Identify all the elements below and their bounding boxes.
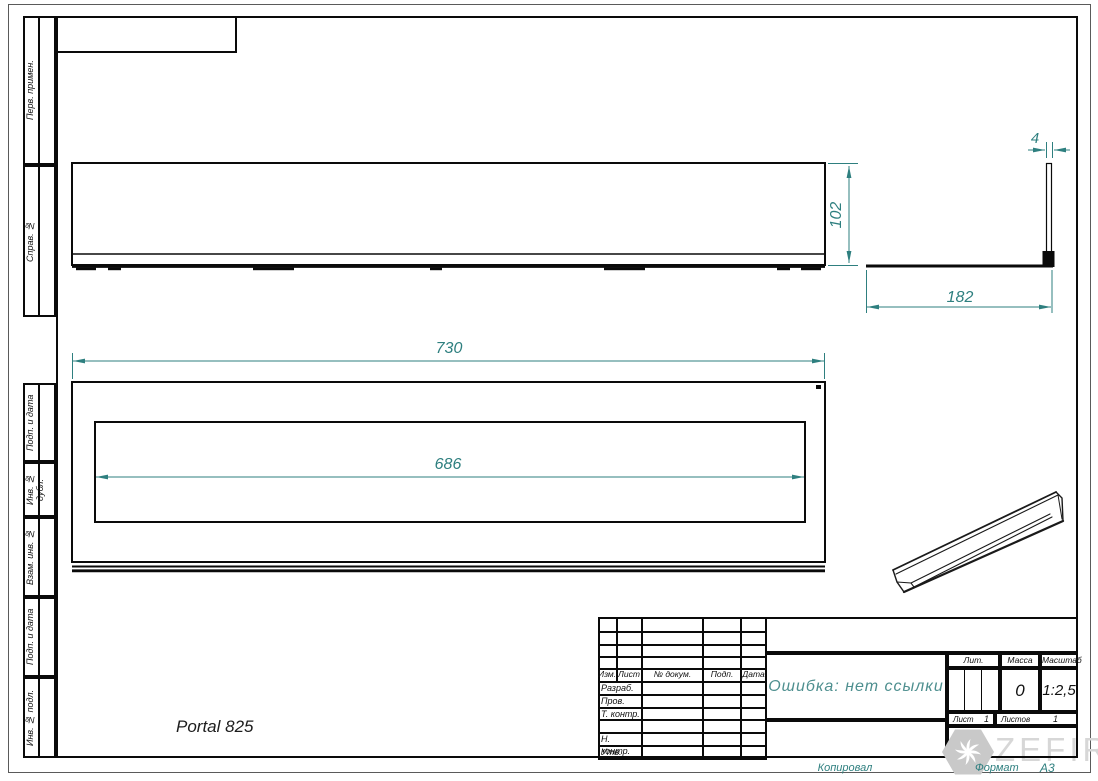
sheet-number-cell: Лист 1: [947, 712, 995, 726]
margin-label: Инв. № подл.: [25, 679, 39, 756]
dim-182: 182: [920, 289, 1000, 307]
drawing-sheet: ZEFIRE: [0, 0, 1098, 781]
part-note: Portal 825: [176, 717, 254, 737]
col-header-date: Дата: [742, 669, 765, 680]
col-header-izm: Изм.: [598, 669, 616, 680]
margin-cell-podp-data-2: Подп. и дата: [23, 597, 56, 677]
sheets-total-cell: Листов 1: [995, 712, 1078, 726]
mass-header-cell: Масса: [1000, 653, 1040, 668]
dim-102: 102: [828, 175, 846, 255]
organization-cell: [947, 726, 1078, 758]
margin-label: Взам. инв. №: [25, 519, 39, 595]
col-header-sign: Подп.: [704, 669, 740, 680]
margin-cell-inv-dubl: Инв. № дубл.: [23, 462, 56, 517]
dim-686: 686: [398, 456, 498, 474]
mass-value-cell: 0: [1000, 668, 1040, 712]
corner-stamp-box: [56, 16, 237, 53]
role-razrab: Разраб.: [601, 682, 641, 694]
scale-value-cell: 1:2,5: [1040, 668, 1078, 712]
titleblock-designation-cell: [765, 617, 1078, 653]
sheet-value: 1: [984, 714, 989, 724]
dim-4: 4: [1020, 130, 1050, 147]
lit-subdivider: [964, 670, 965, 710]
scale-header-cell: Масштаб: [1040, 653, 1078, 668]
role-utv: Утв.: [601, 746, 641, 758]
sheets-label: Листов: [1001, 715, 1030, 724]
margin-cell-inv-podl: Инв. № подл.: [23, 677, 56, 758]
margin-label: Справ. №: [25, 167, 39, 315]
margin-label: Подп. и дата: [25, 385, 39, 460]
col-header-doc: № докум.: [643, 669, 702, 680]
margin-cell-vzam-inv: Взам. инв. №: [23, 517, 56, 597]
margin-cell-sprav-no: Справ. №: [23, 165, 56, 317]
margin-cell-podp-data-1: Подп. и дата: [23, 383, 56, 462]
dim-730: 730: [399, 340, 499, 358]
sheets-value: 1: [1053, 714, 1058, 724]
role-prov: Пров.: [601, 695, 641, 707]
footer-format-label: Формат: [975, 762, 1019, 774]
footer-format-value: А3: [1040, 761, 1055, 775]
footer-copied: Копировал: [795, 762, 895, 774]
role-tkontr: Т. контр.: [601, 708, 641, 720]
margin-label: Инв. № дубл.: [25, 464, 39, 515]
sheet-label: Лист: [953, 715, 974, 724]
margin-cell-perv-primen: Перв. примен.: [23, 16, 56, 165]
lit-header-cell: Лит.: [947, 653, 1000, 668]
titleblock-material-cell: [765, 720, 947, 758]
col-line: [641, 617, 643, 758]
lit-value-cell: [947, 668, 1000, 712]
doc-name-text: Ошибка: нет ссылки: [768, 678, 944, 696]
lit-subdivider: [981, 670, 982, 710]
col-line: [702, 617, 704, 758]
titleblock-doc-name-cell: Ошибка: нет ссылки: [765, 653, 947, 720]
col-line: [740, 617, 742, 758]
margin-label: Подп. и дата: [25, 599, 39, 675]
col-header-list: Лист: [617, 669, 641, 680]
margin-label: Перв. примен.: [25, 18, 39, 163]
